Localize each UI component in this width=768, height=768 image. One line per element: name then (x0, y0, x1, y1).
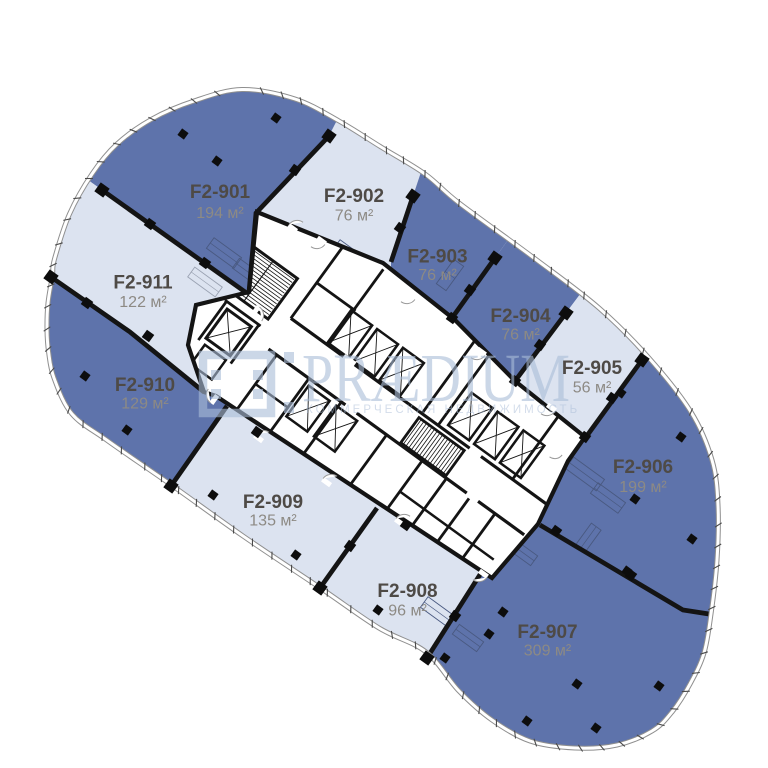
svg-text:96 м²: 96 м² (388, 603, 427, 620)
svg-text:F2-903: F2-903 (407, 247, 467, 268)
svg-text:F2-902: F2-902 (324, 186, 384, 207)
svg-text:КОММЕРЧЕСКАЯ НЕДВИЖИМОСТЬ: КОММЕРЧЕСКАЯ НЕДВИЖИМОСТЬ (306, 404, 580, 416)
svg-text:129 м²: 129 м² (121, 396, 169, 413)
svg-text:F2-905: F2-905 (562, 358, 623, 379)
svg-text:F2-908: F2-908 (377, 581, 437, 602)
svg-text:56 м²: 56 м² (573, 380, 612, 397)
svg-text:309 м²: 309 м² (524, 643, 572, 660)
svg-text:F2-911: F2-911 (113, 273, 173, 294)
svg-text:76 м²: 76 м² (335, 208, 374, 225)
svg-text:F2-904: F2-904 (490, 306, 551, 327)
svg-text:194 м²: 194 м² (196, 205, 244, 222)
svg-text:135 м²: 135 м² (249, 513, 297, 530)
svg-text:F2-910: F2-910 (115, 375, 175, 396)
svg-text:76 м²: 76 м² (418, 267, 457, 284)
svg-text:F2-909: F2-909 (243, 492, 303, 513)
svg-text:199 м²: 199 м² (619, 479, 667, 496)
svg-text:F2-906: F2-906 (613, 457, 673, 478)
svg-text:F2-907: F2-907 (517, 622, 577, 643)
svg-text:122 м²: 122 м² (119, 294, 167, 311)
svg-text:F2-901: F2-901 (190, 182, 251, 203)
svg-text:76 м²: 76 м² (501, 327, 540, 344)
